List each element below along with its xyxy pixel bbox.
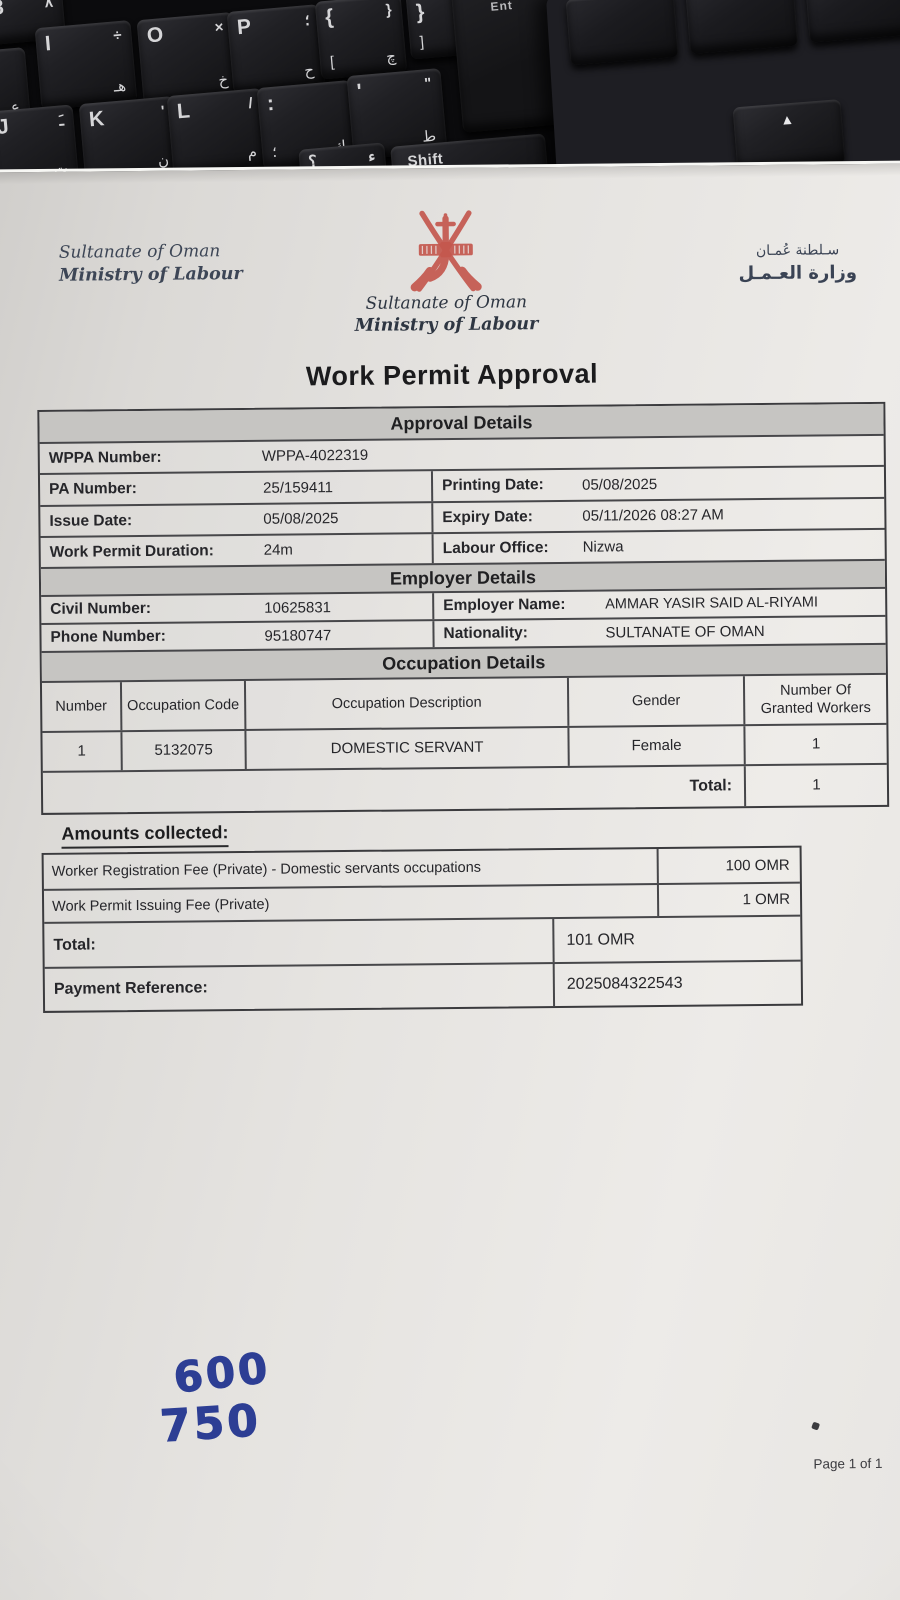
occupation-col-number: Number — [42, 682, 120, 731]
key-legend: ' — [356, 80, 364, 104]
key-legend-arabic: چ — [385, 47, 396, 66]
key-legend: ؛ — [304, 11, 310, 29]
ministry-header-left: Sultanate of Oman Ministry of Labour — [59, 240, 243, 288]
header-left-line2: Ministry of Labour — [59, 263, 243, 288]
occupation-col-gender: Gender — [567, 676, 743, 726]
key-legend-arabic: ح — [304, 61, 315, 80]
fee-description: Worker Registration Fee (Private) - Dome… — [44, 849, 657, 889]
key-legend-arabic: ٨ — [44, 0, 54, 11]
header-arabic-line1: سـلطنة عُمـان — [738, 240, 857, 261]
fee-description: Work Permit Issuing Fee (Private) — [44, 885, 657, 922]
key-legend: ] — [419, 33, 425, 50]
key-legend: { — [324, 5, 335, 30]
key-legend: ÷ — [113, 27, 123, 45]
key-legend: × — [214, 19, 224, 37]
occupation-number-value: 1 — [42, 732, 120, 771]
key-legend: } — [385, 1, 392, 18]
labour-office-value: Nizwa — [583, 538, 624, 555]
wppa-number-label: WPPA Number: — [40, 448, 162, 467]
keyboard-blank-key — [805, 0, 900, 43]
employer-name-value: AMMAR YASIR SAID AL-RIYAMI — [605, 594, 818, 612]
payment-reference-value: 2025084322543 — [553, 962, 801, 1006]
handwritten-note-600: 600 — [171, 1343, 273, 1403]
fee-amount: 1 OMR — [657, 884, 800, 916]
document-title: Work Permit Approval — [2, 356, 900, 396]
expiry-date-value: 05/11/2026 08:27 AM — [582, 506, 724, 524]
issue-date-label: Issue Date: — [40, 510, 263, 530]
labour-office-label: Labour Office: — [434, 538, 583, 557]
issue-date-value: 05/08/2025 — [263, 510, 338, 528]
key-legend: " — [424, 75, 433, 93]
printing-date-label: Printing Date: — [433, 476, 582, 495]
occupation-data-row: 1 5132075 DOMESTIC SERVANT Female 1 — [42, 723, 886, 771]
occupation-total-row: Total: 1 — [43, 763, 887, 813]
key-legend: 8 — [0, 0, 6, 21]
document-paper: Sultanate of Oman Ministry of Labour — [0, 160, 900, 1600]
occupation-total-label: Total: — [43, 766, 744, 813]
wppa-number-value: WPPA-4022319 — [262, 447, 369, 465]
pa-number-label: PA Number: — [40, 479, 263, 499]
occupation-description-value: DOMESTIC SERVANT — [244, 728, 567, 769]
ministry-header-center: Sultanate of Oman Ministry of Labour — [301, 291, 591, 339]
key-legend-arabic: خ — [218, 71, 229, 90]
nationality-value: SULTANATE OF OMAN — [605, 623, 764, 642]
keyboard-key-l: L / م — [167, 88, 269, 176]
key-legend-arabic: هـ — [113, 77, 127, 96]
ink-speck — [811, 1422, 820, 1431]
header-center-line1: Sultanate of Oman — [301, 291, 591, 316]
key-legend: O — [146, 23, 165, 48]
work-permit-document: Sultanate of Oman Ministry of Labour — [0, 164, 900, 1600]
key-legend-arabic: م — [247, 143, 258, 162]
phone-number-label: Phone Number: — [41, 627, 264, 647]
key-legend: : — [266, 92, 276, 117]
duration-value: 24m — [264, 542, 293, 559]
fees-total-value: 101 OMR — [552, 917, 800, 962]
key-legend: I — [44, 32, 53, 57]
oman-national-emblem-icon — [398, 206, 493, 297]
employer-name-label: Employer Name: — [434, 596, 605, 616]
details-table: Approval Details WPPA Number: WPPA-40223… — [37, 402, 889, 815]
expiry-date-label: Expiry Date: — [433, 507, 582, 526]
duration-label: Work Permit Duration: — [41, 541, 264, 561]
key-legend: } — [415, 0, 426, 25]
photo-scene: 8 ٨ I ÷ هـ O × خ P ؛ ح { } [ چ } { ] — [0, 0, 900, 1600]
key-legend: K — [88, 107, 106, 132]
nationality-label: Nationality: — [434, 624, 605, 644]
key-legend: [ — [329, 53, 335, 70]
key-legend-arabic: ؛ — [271, 143, 277, 161]
key-legend: / — [248, 95, 254, 112]
occupation-code-value: 5132075 — [120, 731, 244, 770]
fees-table: Worker Registration Fee (Private) - Dome… — [42, 846, 804, 1013]
key-legend: ـَ — [59, 111, 65, 129]
header-left-line1: Sultanate of Oman — [59, 240, 243, 265]
occupation-col-code: Occupation Code — [120, 681, 244, 730]
printing-date-value: 05/08/2025 — [582, 476, 657, 494]
header-center-line2: Ministry of Labour — [301, 313, 591, 339]
fee-row: Worker Registration Fee (Private) - Dome… — [44, 848, 800, 889]
key-legend: Ent — [490, 0, 513, 14]
keyboard-blank-key — [685, 0, 798, 54]
keyboard-blank-key — [566, 0, 679, 65]
occupation-col-granted: Number Of Granted Workers — [743, 675, 886, 724]
civil-number-value: 10625831 — [264, 599, 331, 617]
key-legend: J — [0, 115, 11, 140]
ministry-header-arabic: سـلطنة عُمـان وزارة العـمـل — [738, 240, 857, 288]
key-legend: P — [236, 15, 253, 40]
keyboard-key-p: P ؛ ح — [227, 4, 326, 94]
occupation-col-description: Occupation Description — [244, 678, 567, 729]
civil-number-label: Civil Number: — [41, 599, 264, 619]
occupation-header-row: Number Occupation Code Occupation Descri… — [42, 673, 886, 731]
page-number: Page 1 of 1 — [813, 1456, 882, 1472]
fees-total-row: Total: 101 OMR — [44, 915, 800, 967]
phone-number-value: 95180747 — [264, 627, 331, 645]
arrow-up-icon: ▲ — [780, 111, 796, 128]
keyboard-key-open-brace: { } [ چ — [315, 0, 407, 80]
key-legend: ' — [160, 103, 165, 120]
occupation-granted-value: 1 — [743, 725, 886, 764]
header-arabic-line2: وزارة العـمـل — [738, 260, 857, 287]
fee-amount: 100 OMR — [657, 848, 800, 883]
payment-reference-row: Payment Reference: 2025084322543 — [45, 960, 801, 1011]
fees-total-label: Total: — [44, 919, 552, 967]
payment-reference-label: Payment Reference: — [45, 964, 553, 1011]
key-legend-arabic: ء — [367, 147, 376, 166]
occupation-total-value: 1 — [744, 765, 887, 806]
keyboard-key-i: I ÷ هـ — [35, 20, 138, 110]
occupation-gender-value: Female — [567, 726, 743, 766]
key-legend: L — [176, 99, 192, 124]
amounts-collected-heading: Amounts collected: — [61, 822, 228, 849]
handwritten-note-750: 750 — [159, 1395, 263, 1452]
pa-number-value: 25/159411 — [263, 479, 333, 497]
